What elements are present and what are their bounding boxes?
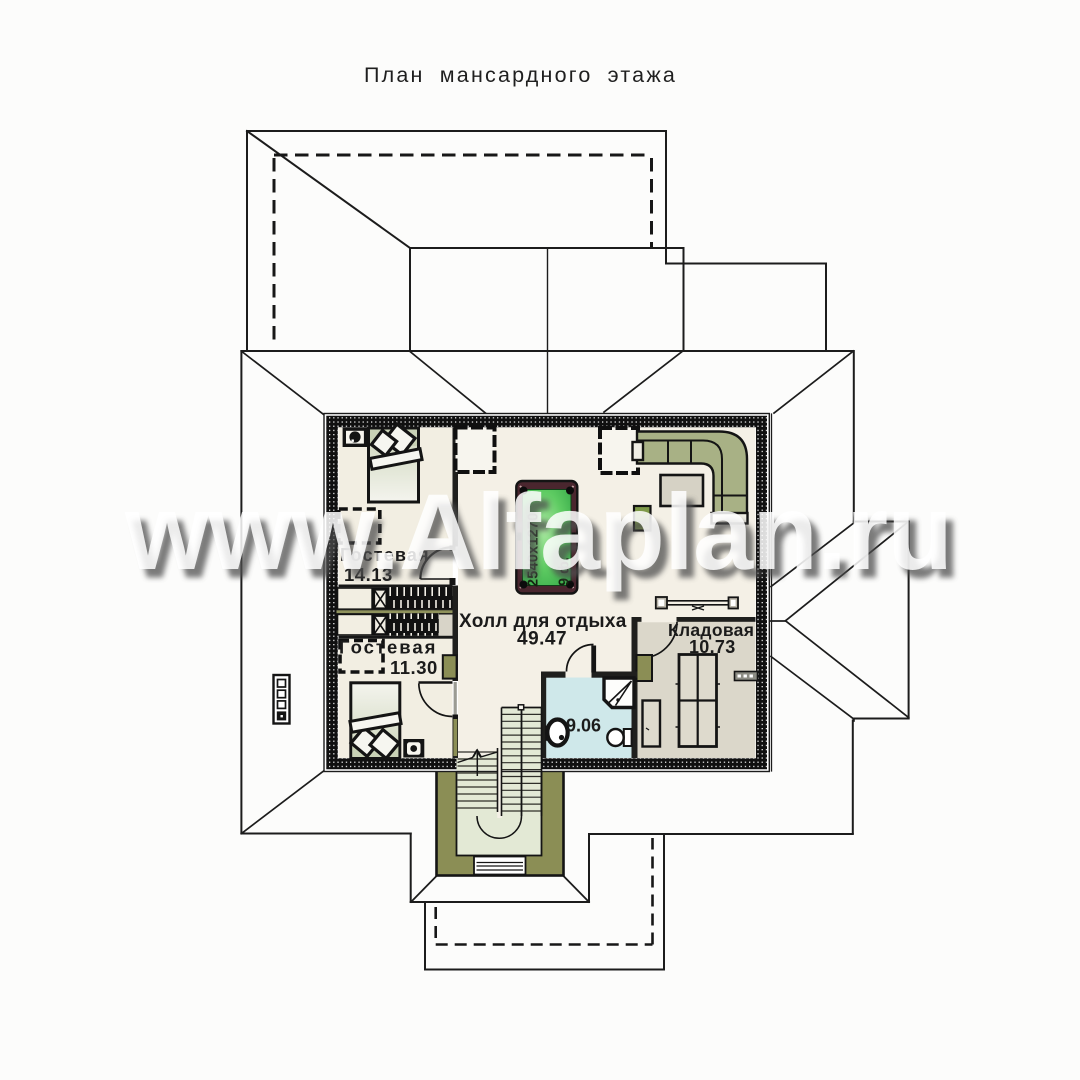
- svg-text:11.30: 11.30: [390, 657, 438, 678]
- svg-text:9.06: 9.06: [566, 716, 601, 736]
- svg-text:10.73: 10.73: [689, 637, 736, 657]
- svg-text:План мансардного этажа: План мансардного этажа: [364, 63, 677, 87]
- svg-text:49.47: 49.47: [517, 629, 567, 650]
- svg-text:Гостевая: Гостевая: [339, 637, 437, 658]
- svg-text:www.Alfaplan.ru: www.Alfaplan.ru: [124, 471, 952, 592]
